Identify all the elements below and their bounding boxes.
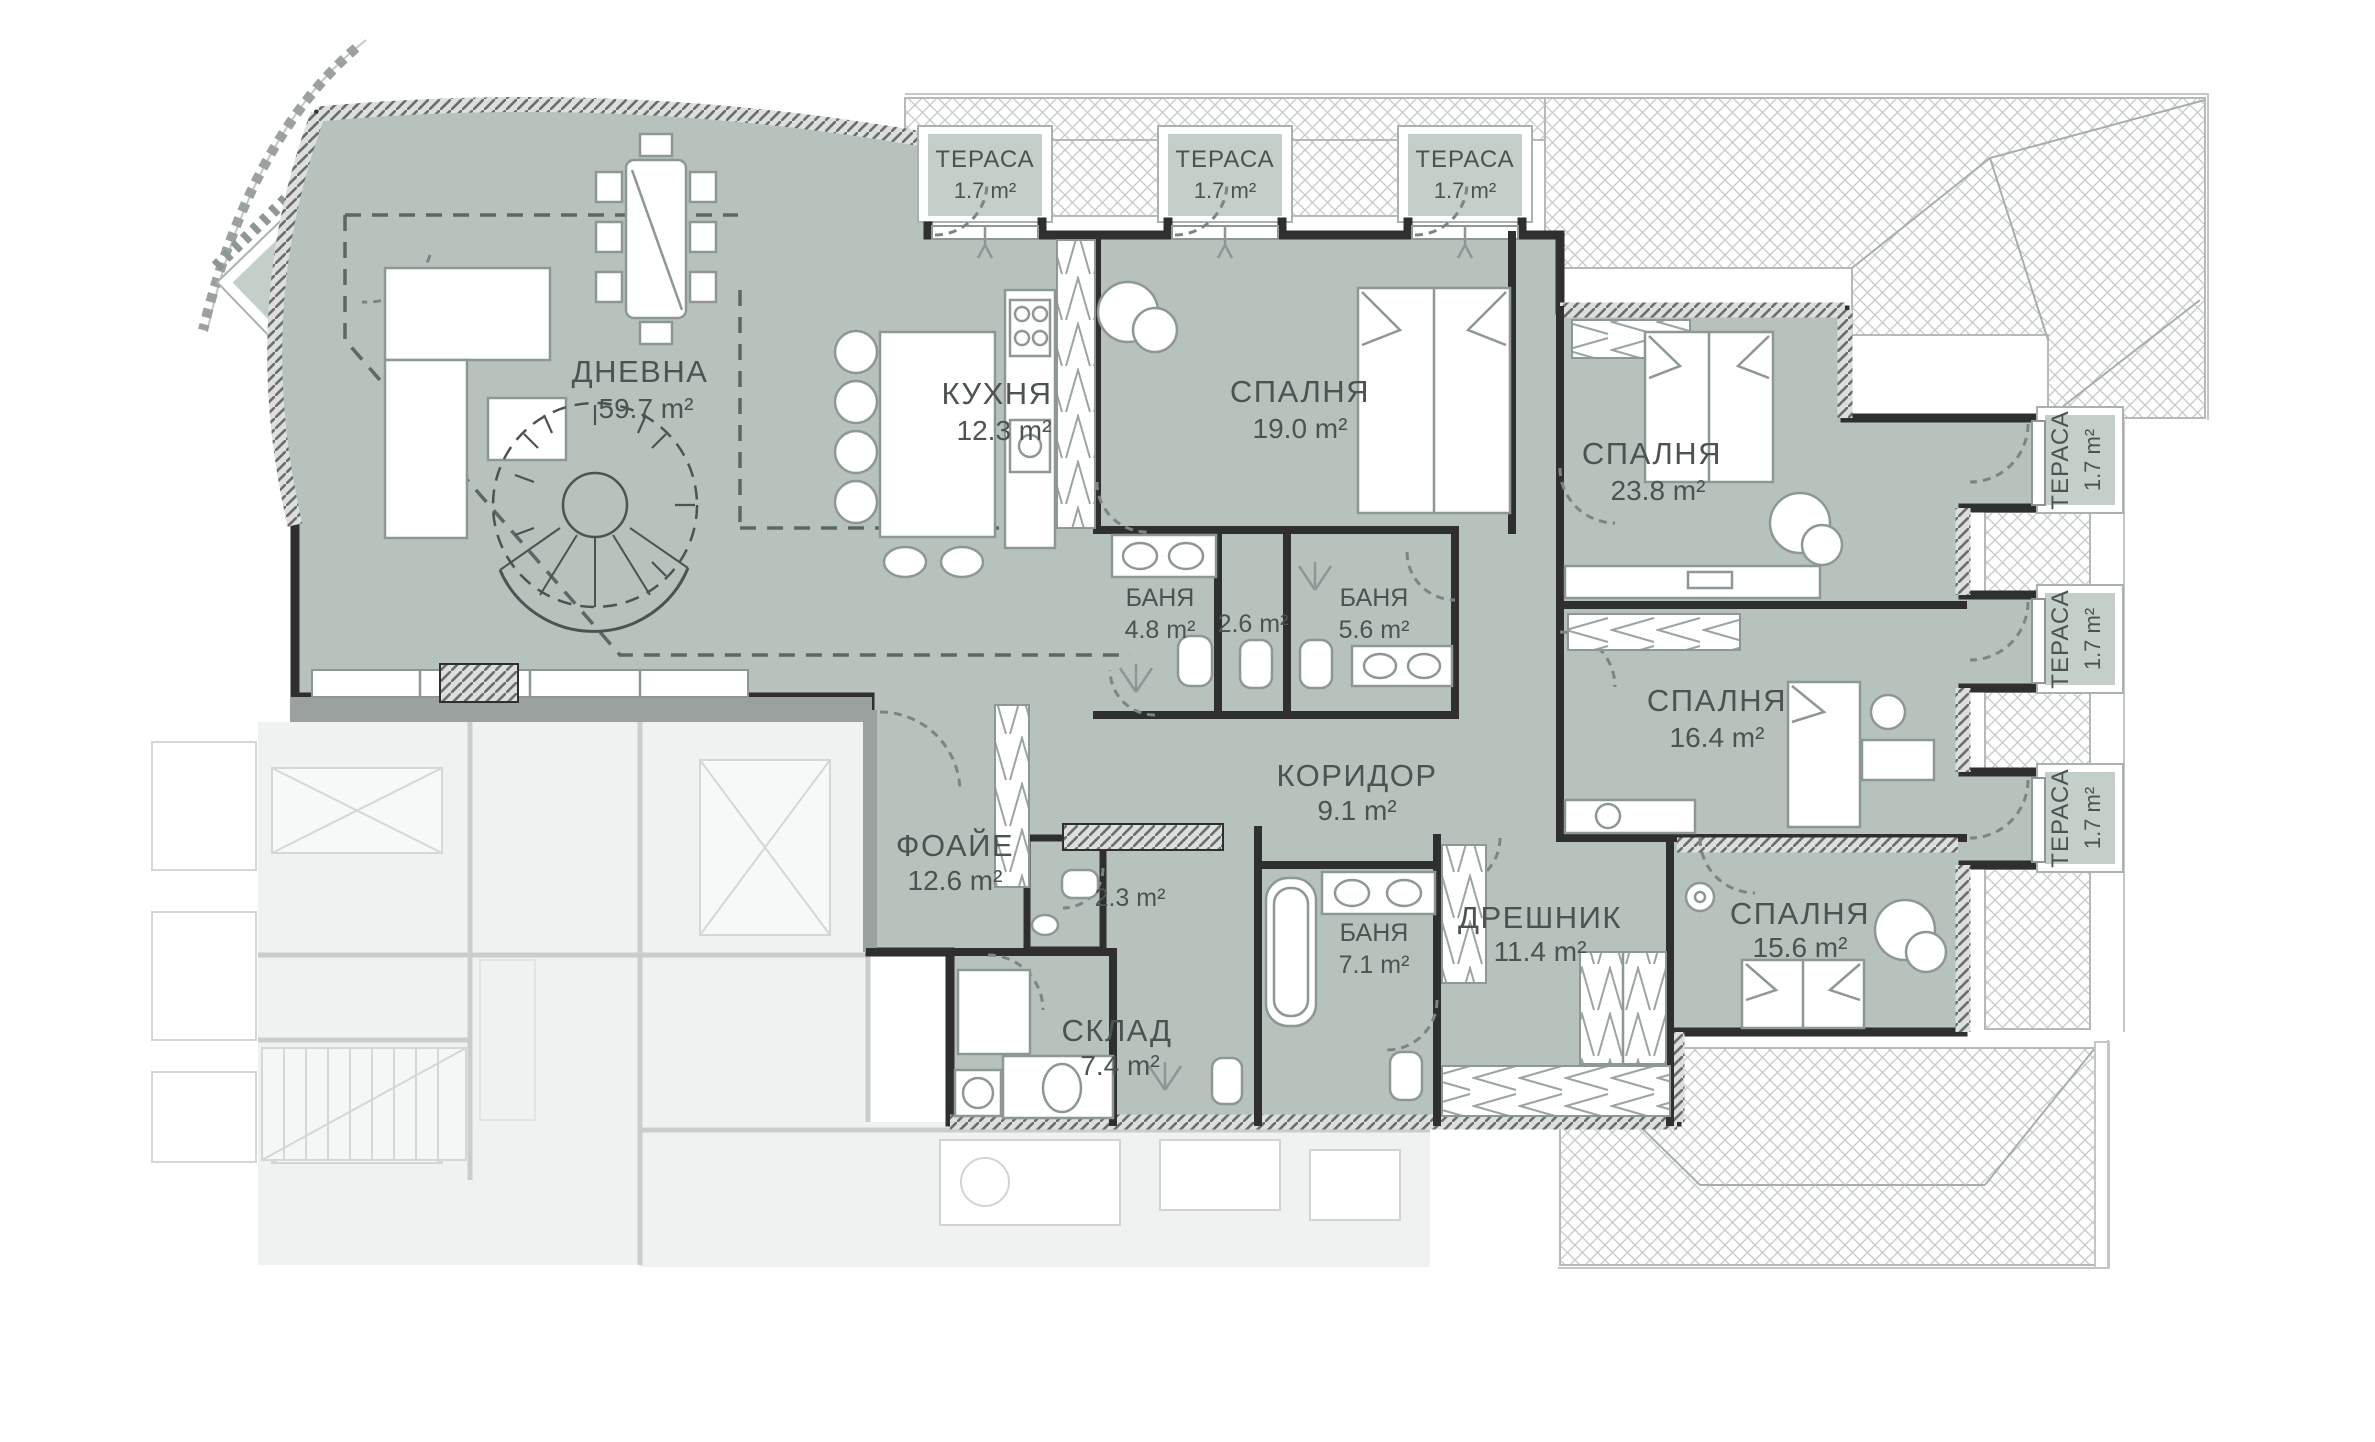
toilet-icon bbox=[1212, 1058, 1242, 1104]
terrace-box-right-1: ТЕРАСА 1.7 m² bbox=[2037, 407, 2123, 513]
wall-hatched-block bbox=[440, 664, 518, 702]
toilet-icon bbox=[1300, 640, 1332, 688]
room-area-banya-2: 5.6 m² bbox=[1339, 616, 1410, 644]
vanity-icon bbox=[1322, 872, 1435, 914]
room-label-banya-2: БАНЯ bbox=[1340, 584, 1409, 612]
lamp-icon bbox=[1686, 883, 1714, 911]
room-area-terrace-r3: 1.7 m² bbox=[2080, 787, 2105, 849]
toilet-icon bbox=[1240, 640, 1272, 688]
neighbor-balcony bbox=[152, 742, 256, 870]
floor-plan-page: ТЕРАСА 3.4 m² ТЕРАСА 1.7 m² ТЕРАСА 1.7 m… bbox=[0, 0, 2375, 1442]
room-label-terrace-r1: ТЕРАСА bbox=[2047, 410, 2074, 509]
room-label-terrace-top-2: ТЕРАСА bbox=[1175, 146, 1274, 173]
coffee-table-icon bbox=[488, 398, 566, 460]
sofa-icon bbox=[385, 360, 467, 538]
toilet-icon bbox=[1062, 870, 1098, 898]
room-label-spalnya-2: СПАЛНЯ bbox=[1582, 436, 1722, 471]
room-area-wc-2: 2.3 m² bbox=[1095, 884, 1166, 912]
vanity-icon bbox=[1112, 535, 1216, 577]
roof-notch bbox=[1985, 512, 2090, 592]
wardrobe-icon bbox=[1057, 240, 1095, 528]
room-label-terrace-top-3: ТЕРАСА bbox=[1415, 146, 1514, 173]
room-label-terrace-top-1: ТЕРАСА bbox=[935, 146, 1034, 173]
neighbor-balcony bbox=[152, 1072, 256, 1162]
stool-icon bbox=[835, 431, 877, 473]
stool-icon bbox=[835, 481, 877, 523]
room-label-sklad: СКЛАД bbox=[1062, 1013, 1173, 1048]
room-label-foaie: ФОАЙЕ bbox=[896, 827, 1014, 863]
room-area-dreshnik: 11.4 m² bbox=[1494, 936, 1587, 967]
room-area-koridor: 9.1 m² bbox=[1317, 795, 1396, 826]
roof-notch bbox=[1985, 692, 2090, 769]
roof-gutter bbox=[2095, 1042, 2109, 1268]
vanity-icon bbox=[1352, 646, 1452, 686]
room-label-dreshnik: ДРЕШНИК bbox=[1458, 900, 1622, 935]
room-label-spalnya-1: СПАЛНЯ bbox=[1230, 374, 1370, 409]
room-area-dnevna: 59.7 m² bbox=[599, 393, 694, 424]
terraces-right: ТЕРАСА 1.7 m² ТЕРАСА 1.7 m² ТЕРАСА 1.7 m… bbox=[2032, 407, 2123, 872]
terrace-box-right-3: ТЕРАСА 1.7 m² bbox=[2037, 764, 2123, 872]
room-area-banya-3: 7.1 m² bbox=[1339, 951, 1410, 979]
room-area-banya-1: 4.8 m² bbox=[1125, 616, 1196, 644]
room-label-koridor: КОРИДОР bbox=[1276, 758, 1437, 793]
tv-icon bbox=[1688, 572, 1732, 588]
roof-gap bbox=[1052, 140, 1158, 216]
room-area-terrace-r1: 1.7 m² bbox=[2080, 429, 2105, 491]
lintel-hatched bbox=[1063, 824, 1223, 850]
room-area-sklad: 7.4 m² bbox=[1080, 1050, 1159, 1081]
wardrobe-icon bbox=[1568, 614, 1740, 650]
room-label-banya-1: БАНЯ bbox=[1126, 584, 1195, 612]
desk-icon bbox=[1862, 740, 1934, 780]
bed-icon bbox=[1788, 682, 1860, 827]
room-area-wc-1: 2.6 m² bbox=[1218, 610, 1289, 638]
stool-icon bbox=[884, 547, 926, 577]
room-label-spalnya-3: СПАЛНЯ bbox=[1647, 683, 1787, 718]
roof-notch bbox=[1985, 869, 2090, 1029]
wardrobe-icon bbox=[1442, 1066, 1670, 1116]
stove-icon bbox=[1010, 300, 1050, 356]
bed-icon bbox=[1742, 960, 1864, 1028]
terrace-box-top-2: ТЕРАСА 1.7 m² bbox=[1158, 126, 1292, 222]
sofa-icon bbox=[385, 268, 550, 360]
terrace-box-top-3: ТЕРАСА 1.7 m² bbox=[1398, 126, 1532, 222]
neighbor-balcony bbox=[152, 912, 256, 1040]
room-area-spalnya-1: 19.0 m² bbox=[1253, 413, 1348, 444]
terrace-box-top-1: ТЕРАСА 1.7 m² bbox=[918, 126, 1052, 222]
stool-icon bbox=[835, 381, 877, 423]
sink-icon bbox=[1032, 915, 1058, 935]
party-wall bbox=[290, 697, 872, 722]
room-label-banya-3: БАНЯ bbox=[1340, 919, 1409, 947]
chair-icon bbox=[1871, 695, 1905, 729]
neighbor-staircase-icon bbox=[262, 1048, 466, 1160]
stool-icon bbox=[835, 331, 877, 373]
room-area-kuhnya: 12.3 m² bbox=[957, 415, 1052, 446]
room-area-terrace-r2: 1.7 m² bbox=[2080, 608, 2105, 670]
toilet-icon bbox=[1390, 1052, 1422, 1100]
room-label-terrace-r2: ТЕРАСА bbox=[2047, 589, 2074, 688]
room-wc-1 bbox=[1240, 640, 1272, 688]
shelf-icon bbox=[958, 970, 1030, 1054]
room-label-spalnya-4: СПАЛНЯ bbox=[1730, 896, 1870, 931]
room-area-spalnya-3: 16.4 m² bbox=[1670, 722, 1765, 753]
roof-gap bbox=[1292, 140, 1398, 216]
neighbor-bed-icon bbox=[700, 760, 830, 935]
neighbor-bed-icon bbox=[272, 768, 442, 853]
terrace-box-right-2: ТЕРАСА 1.7 m² bbox=[2037, 585, 2123, 693]
room-area-spalnya-4: 15.6 m² bbox=[1753, 932, 1848, 963]
bed-icon bbox=[1358, 288, 1510, 513]
room-area-foaie: 12.6 m² bbox=[908, 865, 1003, 896]
room-label-kuhnya: КУХНЯ bbox=[941, 376, 1052, 411]
room-area-spalnya-2: 23.8 m² bbox=[1611, 475, 1706, 506]
counter-icon bbox=[1565, 800, 1695, 833]
stool-icon bbox=[941, 547, 983, 577]
room-label-dnevna: ДНЕВНА bbox=[572, 354, 709, 389]
floor-plan: ТЕРАСА 3.4 m² ТЕРАСА 1.7 m² ТЕРАСА 1.7 m… bbox=[0, 0, 2375, 1442]
room-label-terrace-r3: ТЕРАСА bbox=[2047, 768, 2074, 867]
